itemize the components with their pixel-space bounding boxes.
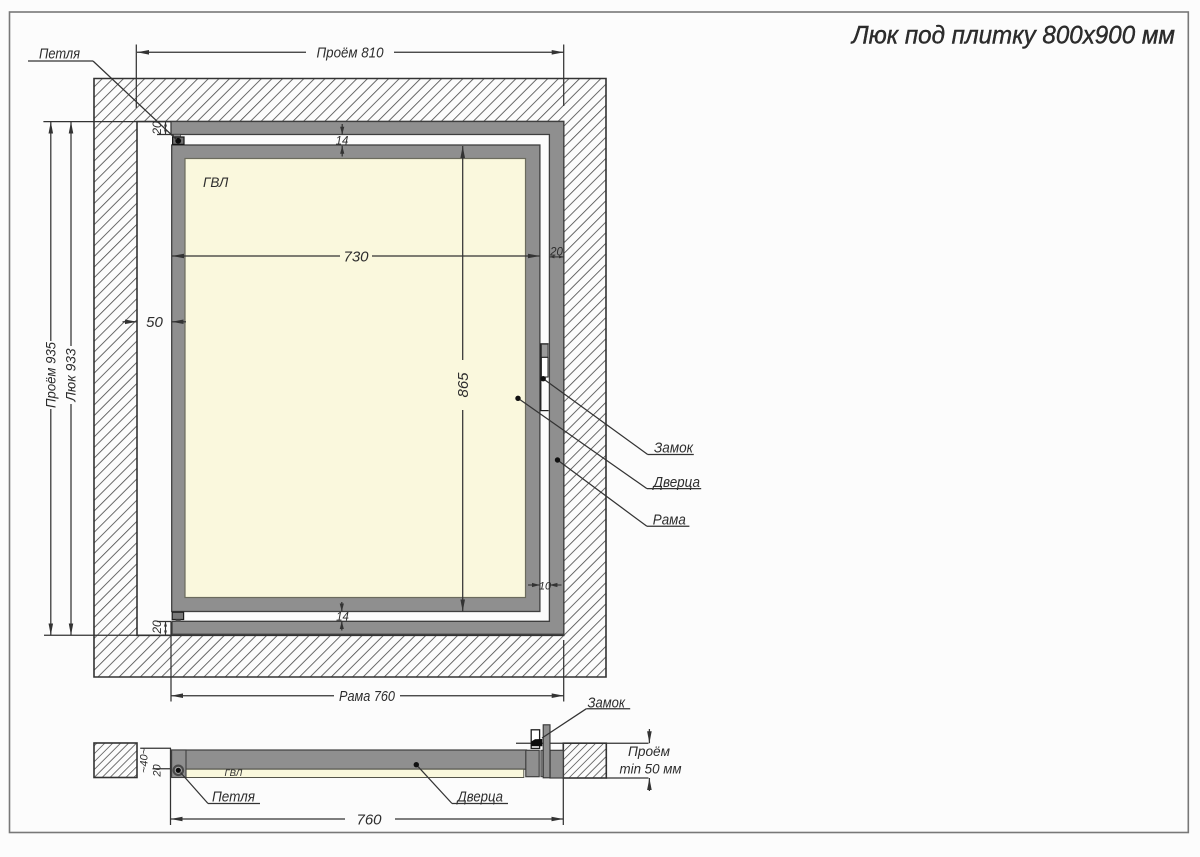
- svg-text:865: 865: [455, 372, 472, 398]
- svg-text:min 50 мм: min 50 мм: [620, 762, 682, 777]
- svg-text:Люк 933: Люк 933: [63, 348, 79, 402]
- svg-text:Проём: Проём: [628, 744, 670, 759]
- svg-text:Петля: Петля: [39, 46, 80, 63]
- svg-text:20: 20: [152, 764, 164, 778]
- svg-text:760: 760: [356, 812, 382, 829]
- svg-text:14: 14: [336, 612, 349, 624]
- svg-text:ГВЛ: ГВЛ: [225, 768, 243, 779]
- svg-text:730: 730: [343, 249, 369, 266]
- svg-text:20: 20: [549, 247, 563, 259]
- svg-text:Люк под плитку 800х900 мм: Люк под плитку 800х900 мм: [850, 22, 1175, 50]
- svg-text:Проём 935: Проём 935: [43, 342, 59, 408]
- svg-text:10: 10: [539, 581, 552, 593]
- svg-text:20: 20: [150, 121, 164, 136]
- svg-text:50: 50: [146, 314, 163, 331]
- svg-text:Рама 760: Рама 760: [339, 688, 396, 705]
- svg-text:20: 20: [150, 620, 164, 635]
- svg-text:14: 14: [336, 136, 349, 148]
- svg-text:Проём 810: Проём 810: [317, 45, 385, 62]
- svg-text:~40~: ~40~: [139, 747, 151, 773]
- svg-text:ГВЛ: ГВЛ: [203, 175, 229, 190]
